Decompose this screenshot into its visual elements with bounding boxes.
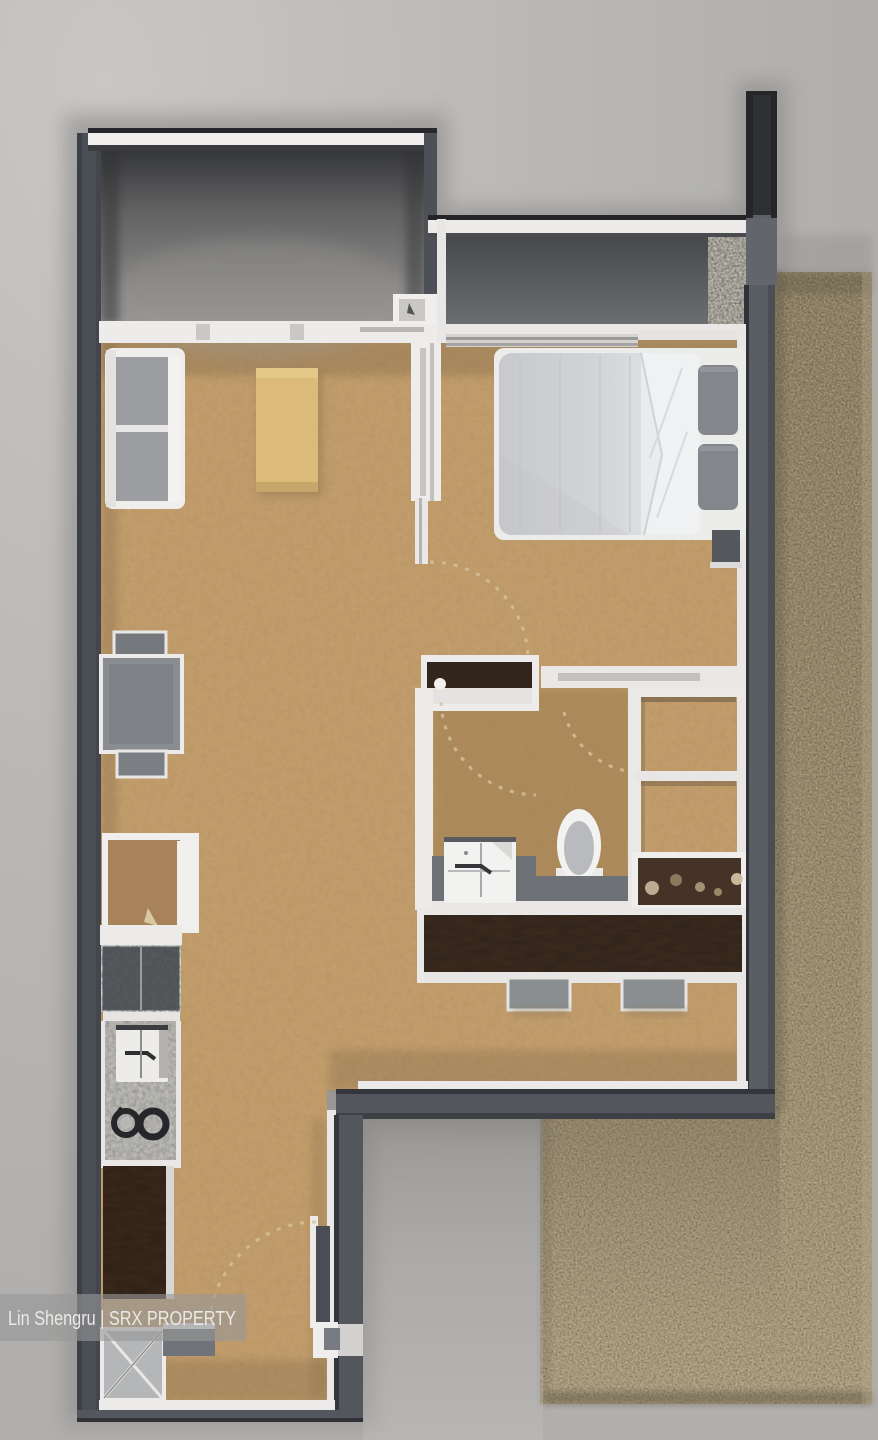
svg-text:Lin Shengru | SRX PROPERTY: Lin Shengru | SRX PROPERTY	[8, 1308, 236, 1330]
